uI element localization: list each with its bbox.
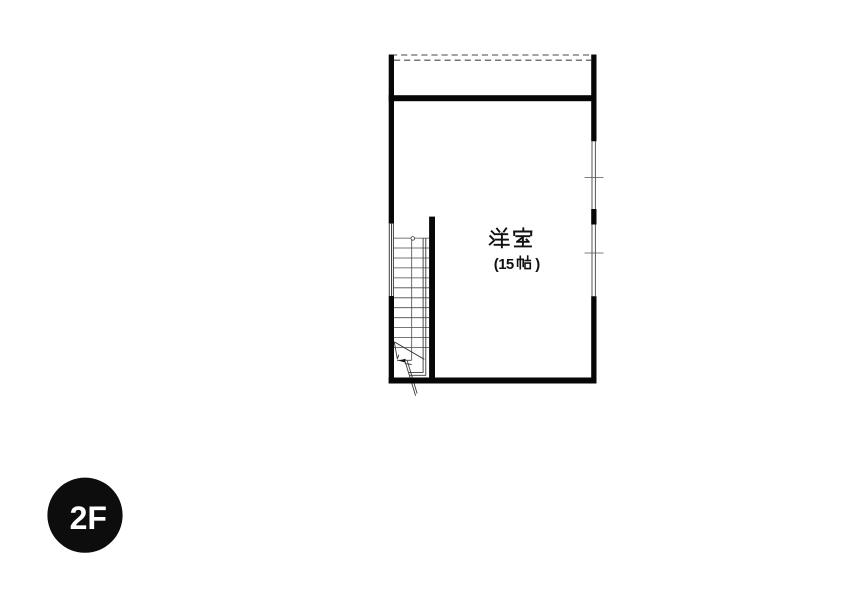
svg-text:(15: (15 (494, 256, 514, 273)
svg-text:2F: 2F (70, 500, 107, 536)
svg-text:): ) (535, 256, 540, 273)
